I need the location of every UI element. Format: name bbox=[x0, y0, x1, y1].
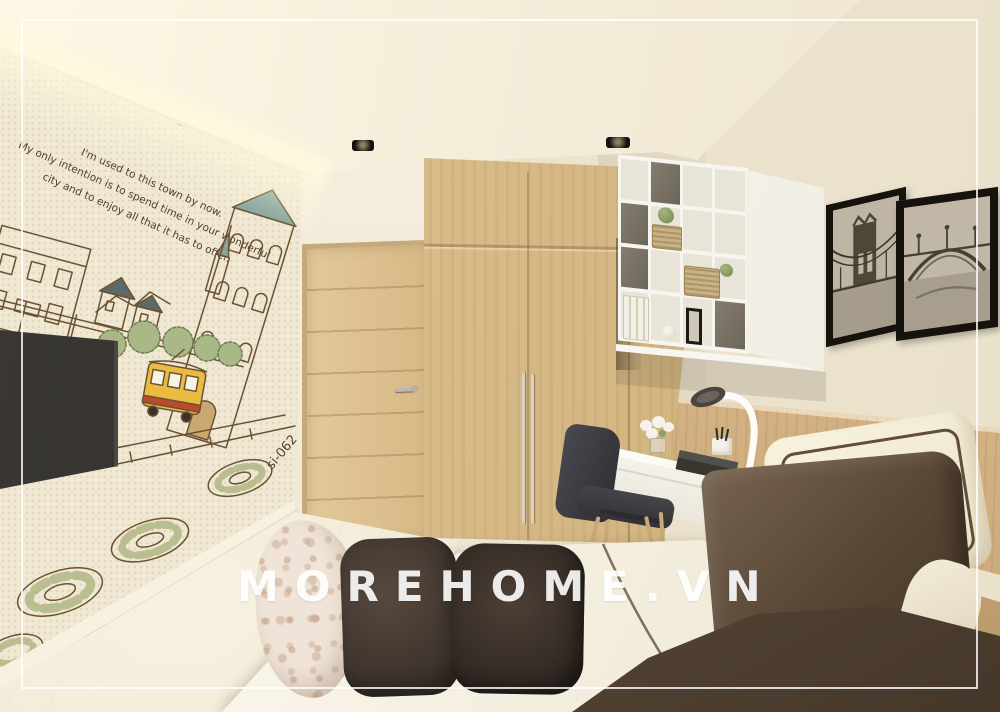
bedroom-render: city background I'm used to this town by… bbox=[0, 0, 1000, 712]
watermark-text: MOREHOME.VN bbox=[237, 562, 776, 611]
pillow-dark-1 bbox=[339, 536, 460, 698]
